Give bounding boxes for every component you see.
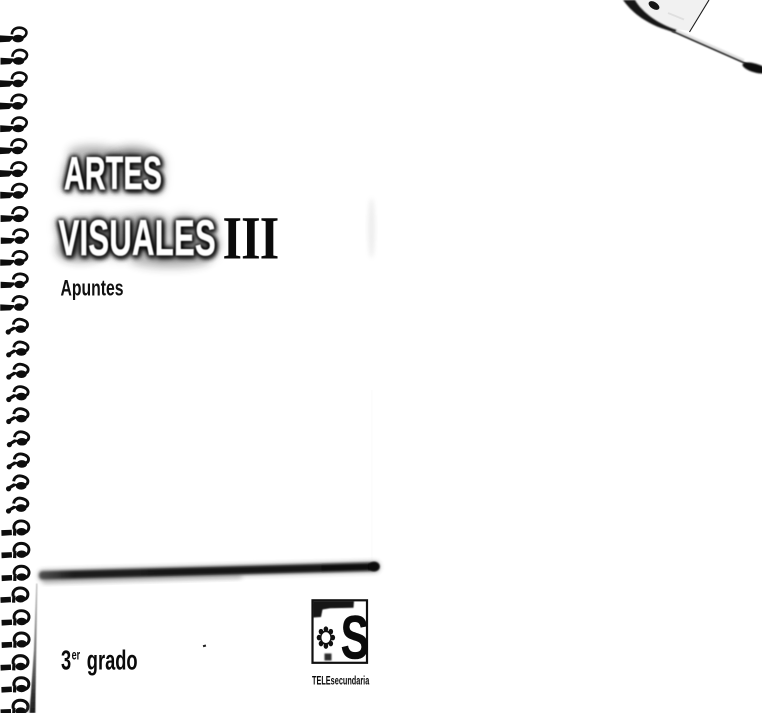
svg-text:VISUALES: VISUALES bbox=[59, 210, 216, 266]
svg-text:grado: grado bbox=[87, 645, 138, 676]
svg-text:er: er bbox=[72, 649, 81, 663]
svg-text:III: III bbox=[223, 205, 279, 273]
svg-text:S: S bbox=[341, 604, 369, 672]
svg-text:Apuntes: Apuntes bbox=[61, 276, 124, 301]
svg-text:ARTES: ARTES bbox=[64, 148, 162, 200]
svg-text:TELEsecundaria: TELEsecundaria bbox=[312, 675, 370, 688]
svg-text:3: 3 bbox=[61, 645, 71, 676]
